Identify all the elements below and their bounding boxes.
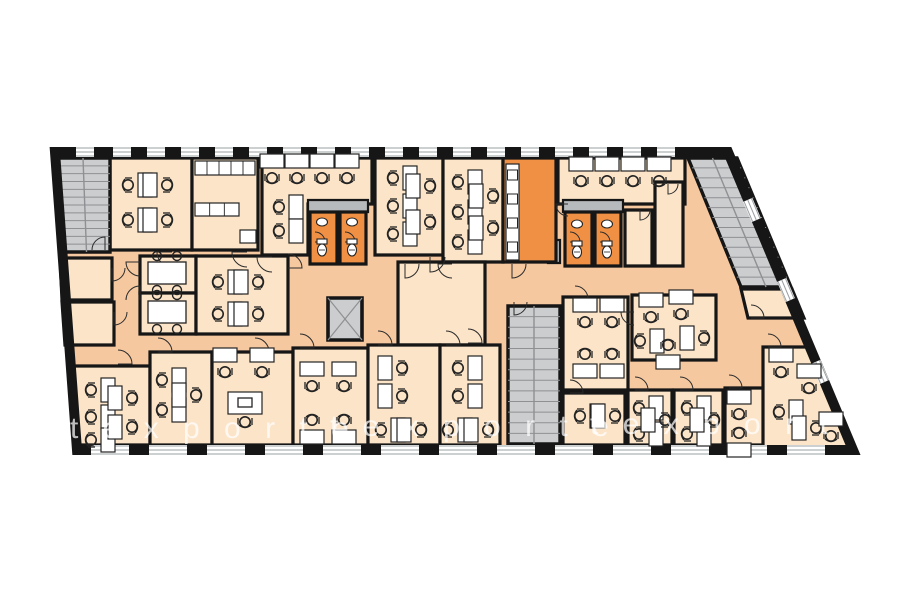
window [147,147,165,157]
floor-plan-page: t e x p o r t et e x p o r t et e x p o … [0,0,900,604]
sink [602,220,613,228]
window [497,445,535,455]
window [787,445,825,455]
window [265,445,303,455]
window [613,445,651,455]
window [657,147,675,157]
window [487,147,505,157]
window [439,445,477,455]
watermark-text: t e x p o r t e [330,410,617,443]
watermark-text: t e x p o r t e [590,408,877,441]
window [181,147,199,157]
window [207,445,245,455]
toilet [317,239,327,256]
reception-room [398,262,485,345]
sink [572,220,583,228]
window [521,147,539,157]
toilet [602,241,612,258]
office-floor-plan-drawing: t e x p o r t et e x p o r t et e x p o … [0,0,900,604]
window [323,445,361,455]
sink [347,218,358,226]
cabinet [240,230,256,243]
small-room-1 [625,210,652,266]
window [381,445,419,455]
window [76,147,94,157]
window [555,445,593,455]
window [623,147,641,157]
wc-vestibule-a [308,200,368,212]
toilet [347,239,357,256]
sink [317,218,328,226]
window [113,147,131,157]
window [215,147,233,157]
cabinet [195,161,255,175]
window [385,147,403,157]
window [453,147,471,157]
wc-vestibule-b [563,200,623,212]
office-top-1 [110,158,192,250]
watermark-text: t e x p o r t e [70,412,357,445]
cabinet [195,203,239,216]
window [589,147,607,157]
toilet [572,241,582,258]
window [555,147,573,157]
kitchen-counter [506,164,519,260]
window [149,445,187,455]
window [419,147,437,157]
small-room-2 [655,182,683,266]
